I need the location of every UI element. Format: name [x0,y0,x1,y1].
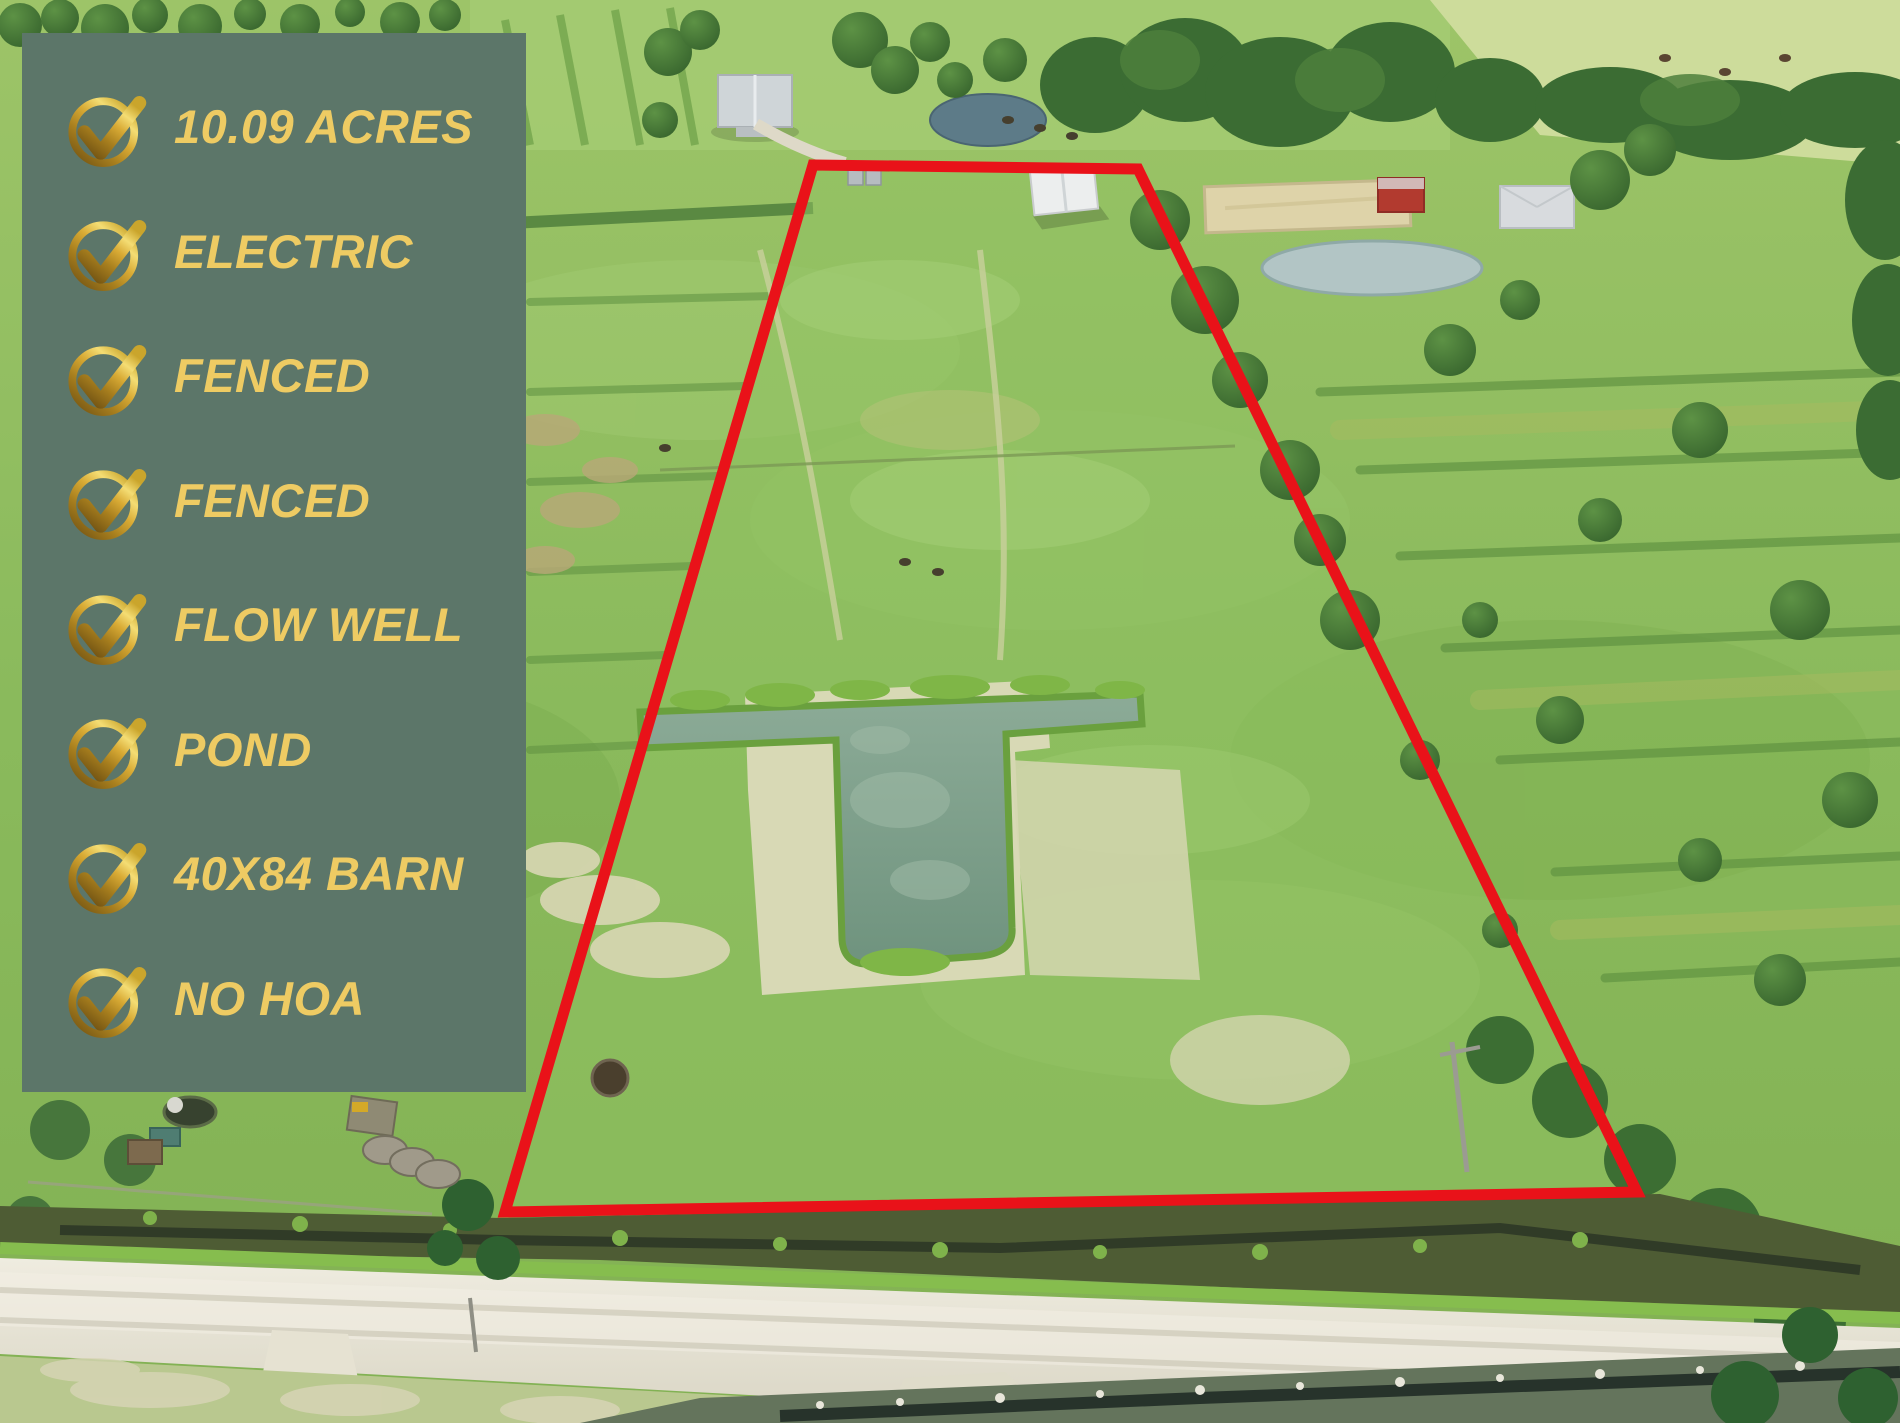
feature-label: FENCED [174,348,370,403]
feature-label: 10.09 ACRES [174,99,473,154]
feature-item: FLOW WELL [22,582,526,668]
neighbor-pond-top [930,94,1046,146]
sand-patch-lower [1170,1015,1350,1105]
feature-label: ELECTRIC [174,224,413,279]
features-panel: 10.09 ACRES ELECTRIC FENCED FENCED FLOW … [22,33,526,1092]
feature-item: 10.09 ACRES [22,84,526,170]
check-icon [62,582,148,668]
check-icon [62,831,148,917]
sand-patch-right [1010,760,1200,980]
feature-label: FENCED [174,473,370,528]
real-estate-listing-image: 10.09 ACRES ELECTRIC FENCED FENCED FLOW … [0,0,1900,1423]
check-icon [62,84,148,170]
check-icon [62,457,148,543]
check-icon [62,706,148,792]
feature-item: FENCED [22,457,526,543]
neighbor-house-right [1500,186,1574,228]
feature-item: NO HOA [22,955,526,1041]
feature-item: 40X84 BARN [22,831,526,917]
check-icon [62,208,148,294]
neighbor-pond-right [1262,241,1482,295]
feature-label: 40X84 BARN [174,846,464,901]
feature-item: FENCED [22,333,526,419]
feature-item: ELECTRIC [22,208,526,294]
check-icon [62,955,148,1041]
feature-item: POND [22,706,526,792]
feature-label: NO HOA [174,971,365,1026]
red-barn [1378,178,1424,212]
feature-label: POND [174,722,312,777]
check-icon [62,333,148,419]
feature-label: FLOW WELL [174,597,463,652]
water-trough [592,1060,628,1096]
